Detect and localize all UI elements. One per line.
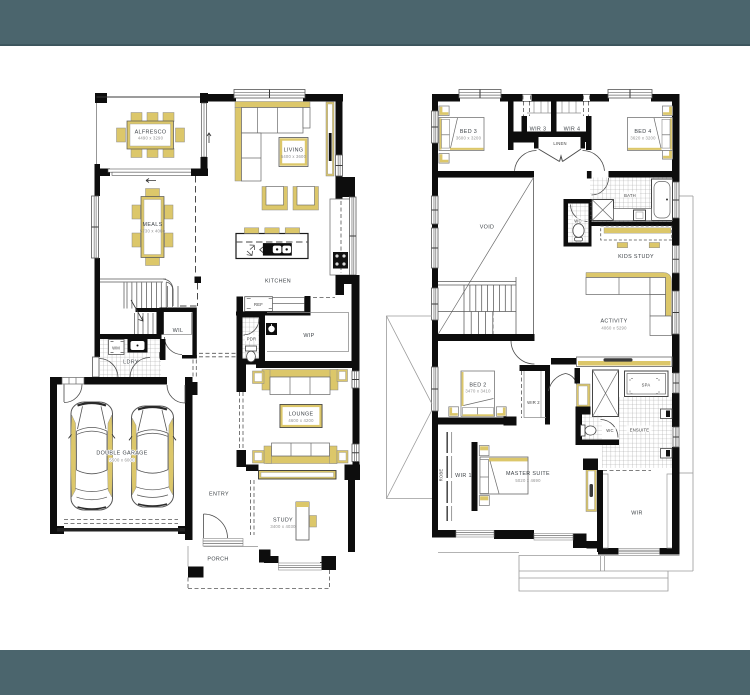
svg-text:DOUBLE GARAGE: DOUBLE GARAGE <box>96 451 147 457</box>
svg-text:LINEN: LINEN <box>553 141 566 146</box>
svg-text:5730 x 4060: 5730 x 4060 <box>140 229 166 234</box>
svg-text:VOID: VOID <box>480 225 495 231</box>
svg-text:3470 x 3410: 3470 x 3410 <box>465 389 491 394</box>
svg-text:WC: WC <box>606 428 613 433</box>
svg-text:KIDS STUDY: KIDS STUDY <box>618 254 654 260</box>
svg-text:WIR: WIR <box>631 511 643 517</box>
svg-text:4600 x 4200: 4600 x 4200 <box>288 418 314 423</box>
svg-text:PORCH: PORCH <box>207 557 228 563</box>
svg-text:ENTRY: ENTRY <box>209 492 229 498</box>
svg-text:3620 x 3200: 3620 x 3200 <box>630 136 656 141</box>
svg-text:STUDY: STUDY <box>273 518 293 524</box>
svg-text:ENSUITE: ENSUITE <box>630 428 650 433</box>
svg-text:KITCHEN: KITCHEN <box>265 279 291 285</box>
svg-text:5400 x 3600: 5400 x 3600 <box>281 154 307 159</box>
svg-text:BATH: BATH <box>624 193 636 198</box>
svg-text:5020 x 4690: 5020 x 4690 <box>515 478 541 483</box>
svg-text:PDR: PDR <box>247 337 256 342</box>
svg-text:ACTIVITY: ACTIVITY <box>600 319 627 325</box>
svg-text:WIP: WIP <box>303 333 314 339</box>
svg-text:WIR 1: WIR 1 <box>455 473 472 479</box>
svg-text:WIR 2: WIR 2 <box>527 400 540 405</box>
svg-text:5500 x 6000: 5500 x 6000 <box>109 458 135 463</box>
svg-text:MEALS: MEALS <box>142 222 162 228</box>
svg-text:3400 x 4030: 3400 x 4030 <box>270 524 296 529</box>
svg-text:BED 3: BED 3 <box>460 129 477 135</box>
svg-text:MASTER SUITE: MASTER SUITE <box>506 471 550 477</box>
svg-text:BED 4: BED 4 <box>634 129 651 135</box>
svg-text:REF: REF <box>254 302 263 307</box>
svg-text:3600 x 3200: 3600 x 3200 <box>456 136 482 141</box>
svg-text:4060 x 5290: 4060 x 5290 <box>601 326 627 331</box>
svg-text:SPA: SPA <box>642 383 651 388</box>
svg-text:WC: WC <box>574 219 581 224</box>
svg-text:LIVING: LIVING <box>284 148 304 154</box>
svg-text:ROBE: ROBE <box>439 469 444 482</box>
svg-text:WM: WM <box>112 346 120 351</box>
svg-text:4490 x 3290: 4490 x 3290 <box>138 136 164 141</box>
svg-text:WIL: WIL <box>173 328 184 334</box>
svg-text:LOUNGE: LOUNGE <box>289 412 314 418</box>
